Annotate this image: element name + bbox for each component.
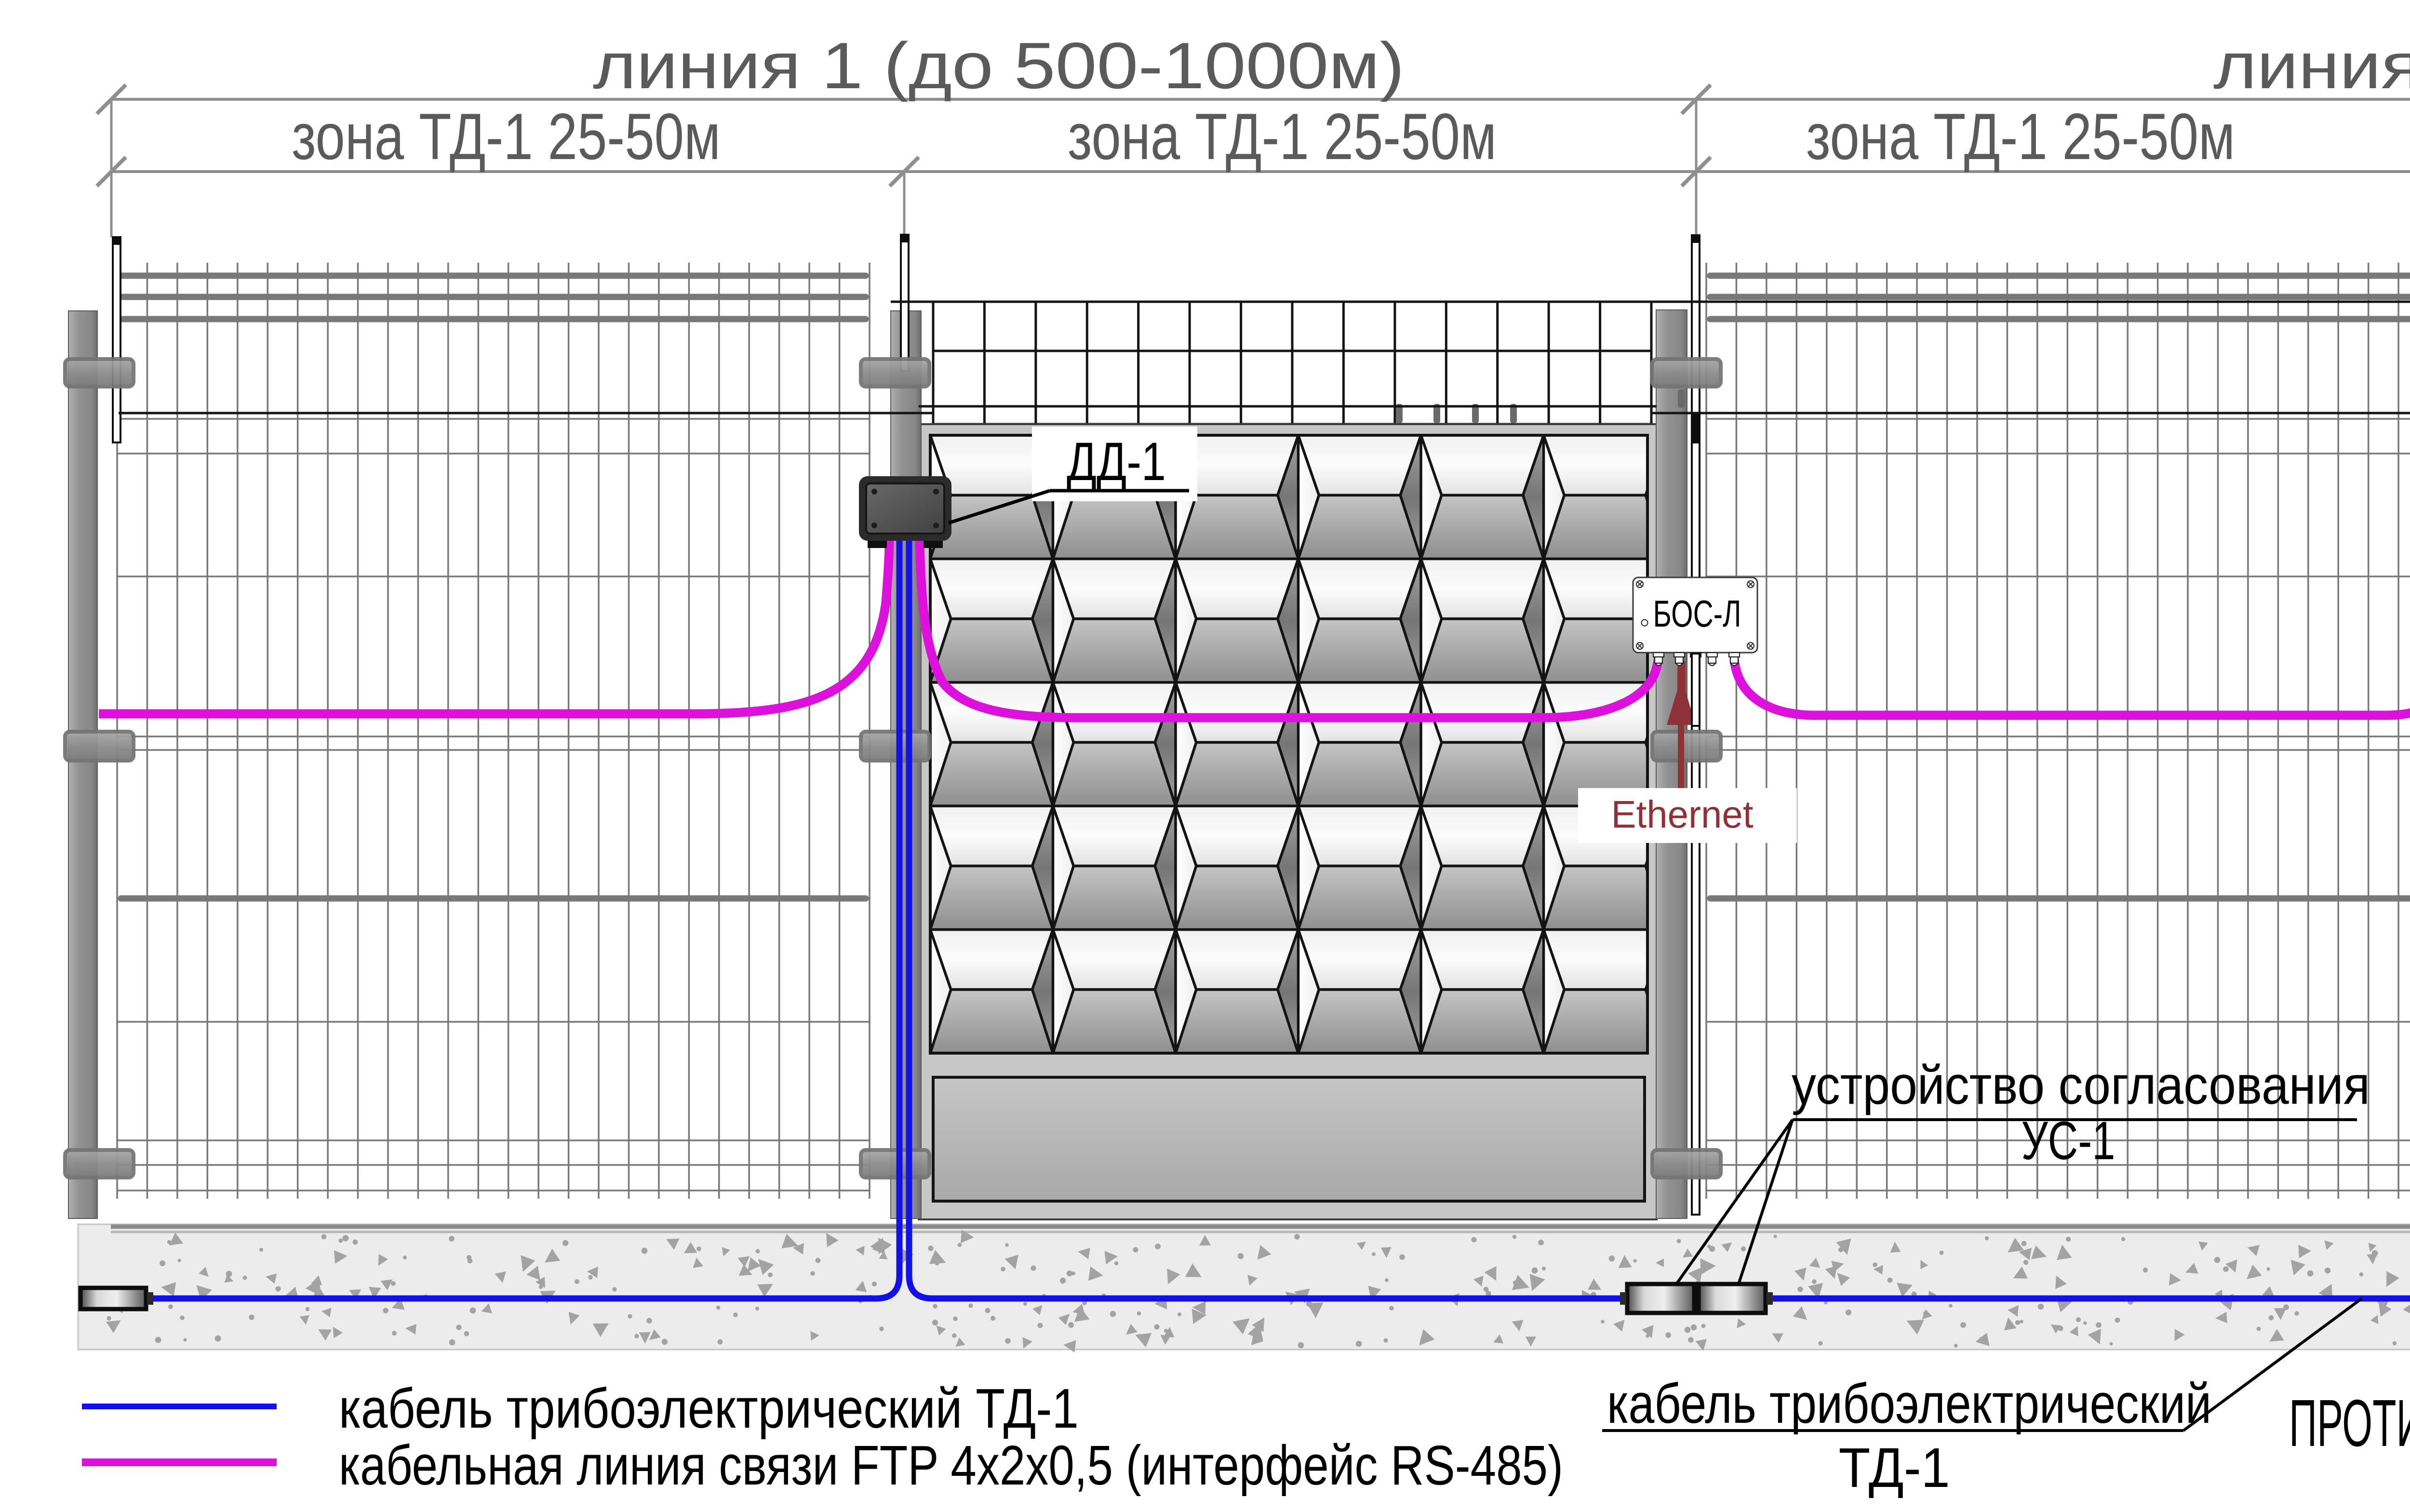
svg-text:ПРОТИВОПОДКОП: ПРОТИВОПОДКОП: [2289, 1386, 2410, 1460]
svg-text:Ethernet: Ethernet: [1611, 793, 1754, 836]
svg-text:кабель трибоэлектрический: кабель трибоэлектрический: [1607, 1372, 2211, 1435]
svg-text:зона ТД-1 25-50м: зона ТД-1 25-50м: [292, 100, 721, 173]
svg-text:ДД-1: ДД-1: [1067, 431, 1166, 492]
svg-text:зона ТД-1 25-50м: зона ТД-1 25-50м: [1068, 100, 1497, 173]
svg-text:линия 2 (до 500-1000м): линия 2 (до 500-1000м): [2213, 29, 2410, 102]
svg-text:ТД-1: ТД-1: [1839, 1436, 1950, 1499]
svg-text:зона ТД-1 25-50м: зона ТД-1 25-50м: [1806, 100, 2235, 173]
svg-text:УС-1: УС-1: [2022, 1111, 2115, 1171]
svg-text:устройство согласования: устройство согласования: [1792, 1055, 2370, 1115]
svg-text:кабельная линия связи FTP 4x2x: кабельная линия связи FTP 4x2x0,5 (интер…: [339, 1434, 1563, 1497]
svg-text:линия 1 (до 500-1000м): линия 1 (до 500-1000м): [593, 29, 1405, 102]
svg-text:кабель трибоэлектрический ТД-1: кабель трибоэлектрический ТД-1: [339, 1377, 1079, 1440]
svg-text:БОС-Л: БОС-Л: [1653, 592, 1741, 635]
